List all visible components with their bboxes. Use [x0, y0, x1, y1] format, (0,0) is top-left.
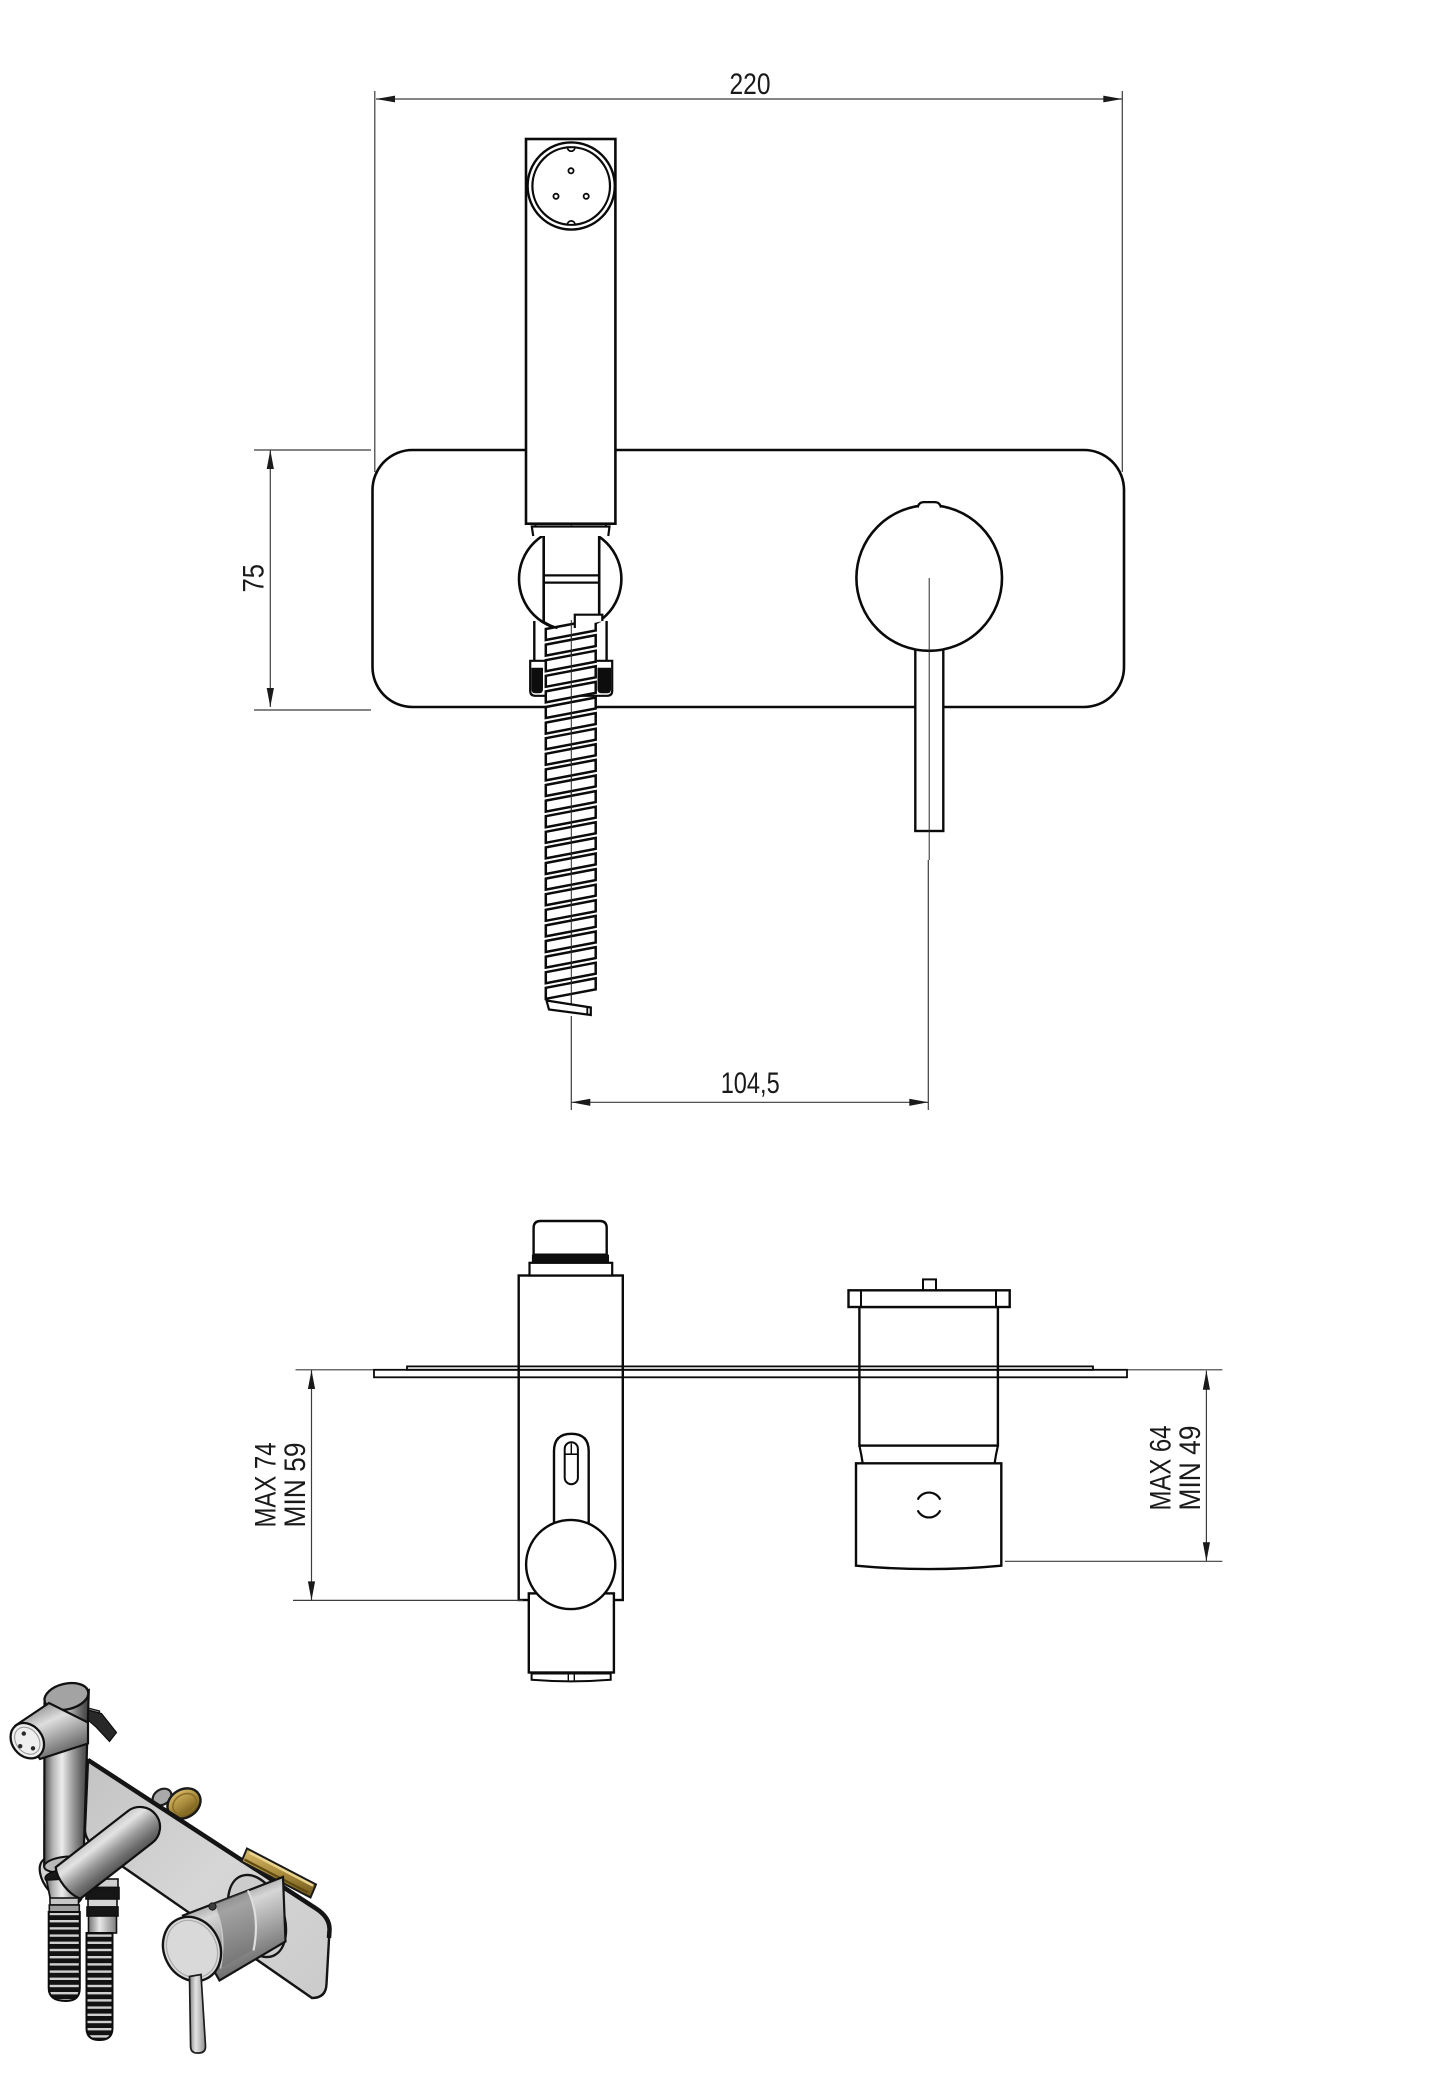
- svg-text:MIN 49: MIN 49: [1174, 1426, 1207, 1511]
- svg-text:220: 220: [730, 68, 771, 101]
- svg-text:75: 75: [237, 564, 270, 593]
- svg-text:MAX 74: MAX 74: [249, 1443, 282, 1528]
- svg-text:MIN 59: MIN 59: [279, 1443, 312, 1528]
- svg-text:MAX 64: MAX 64: [1145, 1426, 1178, 1511]
- svg-text:104,5: 104,5: [721, 1067, 780, 1100]
